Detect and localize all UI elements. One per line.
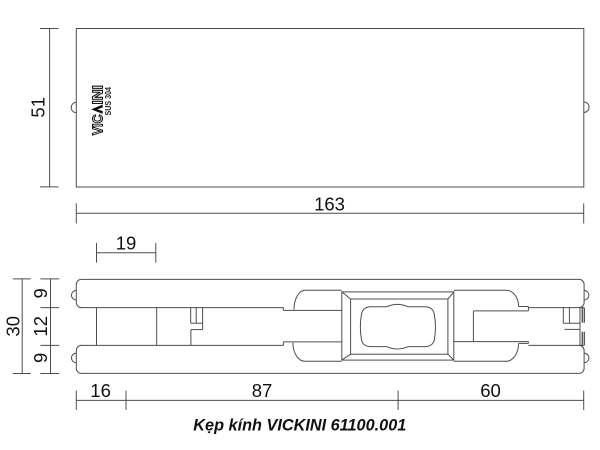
svg-text:9: 9	[30, 353, 51, 363]
svg-text:16: 16	[90, 380, 111, 401]
svg-text:51: 51	[28, 97, 49, 118]
svg-text:9: 9	[30, 288, 51, 298]
svg-text:VIC: VIC	[89, 114, 106, 135]
svg-text:30: 30	[3, 316, 24, 337]
svg-text:163: 163	[314, 194, 345, 215]
svg-text:Kẹp kính VICKINI 61100.001: Kẹp kính VICKINI 61100.001	[193, 416, 406, 435]
svg-text:87: 87	[252, 380, 273, 401]
svg-text:12: 12	[30, 316, 51, 337]
svg-text:SUS 304: SUS 304	[103, 87, 113, 116]
svg-text:60: 60	[480, 380, 501, 401]
svg-text:19: 19	[116, 233, 137, 254]
